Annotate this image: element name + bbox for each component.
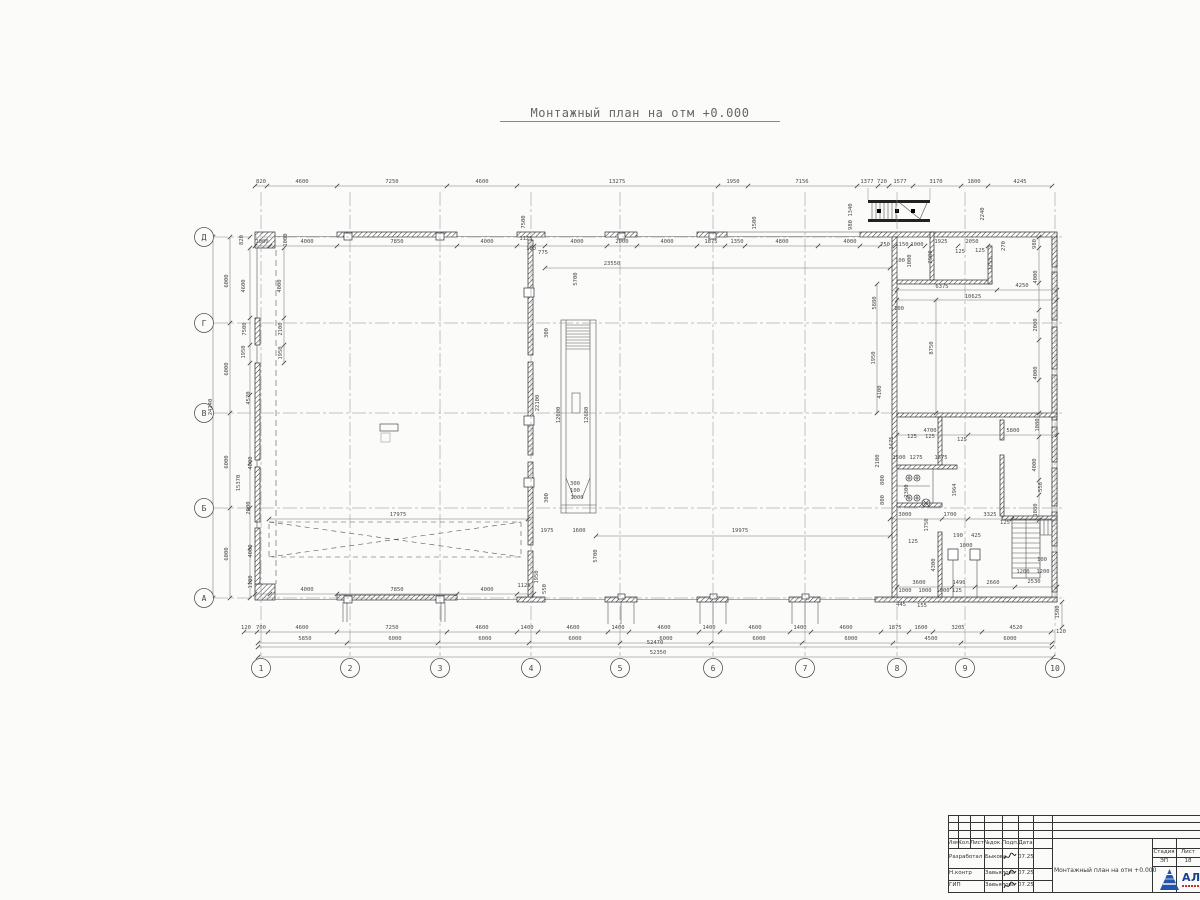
dimension-label: 6000 (478, 636, 491, 642)
dimension-label: 120 (1056, 629, 1066, 635)
axis-marker-col-10: 10 (1046, 659, 1065, 678)
axis-label: 10 (1050, 664, 1060, 673)
dimension-label: 4000 (248, 544, 254, 557)
tb-stage-value: ЭП (1152, 859, 1176, 865)
dimension-lines-layer (213, 186, 1062, 657)
dimension-label: 1950 (726, 179, 739, 185)
dimension-label: 17975 (390, 512, 407, 518)
dimension-label: 2000 (246, 501, 252, 514)
dimension-label: 120 (241, 625, 251, 631)
dimension-label: 100 (570, 488, 580, 494)
dimension-label: 7500 (521, 215, 527, 228)
axis-label: Г (202, 319, 207, 328)
dimension-label: 1000 (570, 495, 583, 501)
dimension-label: 1925 (934, 239, 947, 245)
tb-date-gip: 07.25 (1018, 883, 1033, 889)
dimension-label: 1200 (1036, 569, 1049, 575)
dimension-label: 1000 (255, 239, 268, 245)
dimension-label: 1500 (1055, 605, 1061, 618)
dimension-label: 7850 (390, 587, 403, 593)
tb-header-list: Лист (970, 841, 984, 847)
dimension-label: 2660 (986, 580, 999, 586)
dimension-label: 5850 (298, 636, 311, 642)
axis-label: Б (202, 504, 207, 513)
dimension-label: 12680 (584, 407, 590, 424)
axis-marker-row-Д: Д (195, 228, 214, 247)
dimension-label: 6000 (224, 547, 230, 560)
dimension-label: 1400 (520, 625, 533, 631)
axis-marker-col-5: 5 (611, 659, 630, 678)
dimension-label: 4600 (295, 625, 308, 631)
dimension-label: 445 (896, 602, 906, 608)
axis-label: 7 (803, 664, 808, 673)
dimension-label: 1700 (943, 512, 956, 518)
axis-marker-row-Б: Б (195, 499, 214, 518)
dimension-label: 4000 (570, 239, 583, 245)
dimension-label: 125 (955, 249, 965, 255)
tb-role-developer: Разработал (949, 855, 982, 861)
dimension-label: 4600 (839, 625, 852, 631)
dimension-label: 300 (544, 328, 550, 338)
axis-label: 3 (438, 664, 443, 673)
dimension-label: 4600 (566, 625, 579, 631)
drawing-title: Монтажный план на отм +0.000 (500, 106, 780, 122)
dimension-label: 1200 (1016, 569, 1029, 575)
dimension-label: 4000 (1032, 458, 1038, 471)
dimension-label: 800 (880, 495, 886, 505)
dimension-label: 8750 (929, 341, 935, 354)
dimension-label: 1150 (895, 242, 908, 248)
axis-marker-row-Г: Г (195, 314, 214, 333)
dimension-label: 52350 (650, 650, 667, 656)
dimension-label: 1350 (730, 239, 743, 245)
dimension-label: 1000 (907, 254, 913, 267)
dimension-label: 3325 (983, 512, 996, 518)
tb-date-ncontrol: 07.25 (1018, 871, 1033, 877)
dimension-label: 23550 (604, 261, 621, 267)
dimension-label: 125 (907, 434, 917, 440)
dimension-label: 4600 (475, 179, 488, 185)
tb-role-ncontrol: Н.контр (949, 871, 972, 877)
dimension-label: 1377 (860, 179, 873, 185)
dimension-label: 300 (570, 481, 580, 487)
signature-gip (1003, 881, 1017, 891)
dimension-label: 2000 (615, 239, 628, 245)
dimension-label: 4570 (246, 391, 252, 404)
dimension-label: 1600 (914, 625, 927, 631)
dimension-label: 1125 (517, 583, 530, 589)
signature-ncontrol (1003, 869, 1017, 879)
dimension-label: 1950 (871, 351, 877, 364)
dimension-label: 100 (894, 306, 904, 312)
dimension-label: 6000 (224, 362, 230, 375)
dimension-label: 2530 (1027, 579, 1040, 585)
dimension-label: 2240 (980, 207, 986, 220)
dimension-label: 270 (1001, 241, 1007, 251)
dimension-label: 1800 (967, 179, 980, 185)
dimension-label: 125 (1000, 520, 1010, 526)
tb-header-data: Дата (1018, 841, 1033, 847)
dimension-label: 4245 (1013, 179, 1026, 185)
dimension-label: 4000 (300, 239, 313, 245)
dimension-label: 1080 (1035, 418, 1041, 431)
dimension-label: 1950 (278, 346, 284, 359)
dimension-label: 425 (971, 533, 981, 539)
dimension-label: 125 (908, 539, 918, 545)
dimension-label: 1340 (848, 203, 854, 216)
dimension-label: 820 (239, 235, 245, 245)
axis-label: А (202, 594, 207, 603)
axis-label: 6 (711, 664, 716, 673)
dimension-label: 720 (877, 179, 887, 185)
dimension-label: 980 (848, 220, 854, 230)
dimension-label: 6000 (388, 636, 401, 642)
dimension-label: 4600 (748, 625, 761, 631)
dimension-label: 1000 (283, 233, 289, 246)
dimension-label: 3170 (929, 179, 942, 185)
dimension-label: 4800 (775, 239, 788, 245)
drawing-sheet: Монтажный план на отм +0.000 (0, 0, 1200, 900)
axis-label: 1 (259, 664, 264, 673)
dimension-label: 1275 (909, 455, 922, 461)
dimension-label: 155 (917, 603, 927, 609)
dimension-label: 5880 (872, 296, 878, 309)
dimension-label: 7250 (385, 179, 398, 185)
dimension-label: 1400 (611, 625, 624, 631)
dimension-label: 4000 (660, 239, 673, 245)
dimension-label: 7250 (385, 625, 398, 631)
dimension-label: 1875 (888, 625, 901, 631)
dimension-label: 10625 (965, 294, 982, 300)
dimension-label: 300 (544, 493, 550, 503)
dimension-label: 6000 (224, 274, 230, 287)
dimension-label: 1500 (752, 216, 758, 229)
dimension-label: 100 (895, 258, 905, 264)
dimension-label: 7850 (390, 239, 403, 245)
company-logo-icon (1160, 869, 1179, 890)
axis-marker-col-8: 8 (888, 659, 907, 678)
dimension-label: 2100 (875, 454, 881, 467)
dimension-label: 1577 (893, 179, 906, 185)
dimension-label: 4100 (877, 385, 883, 398)
dimension-label: 4000 (843, 239, 856, 245)
axis-label: В (202, 409, 207, 418)
signature-developer (1003, 852, 1017, 862)
axis-label: 5 (618, 664, 623, 673)
tb-header-podp: Подп. (1002, 841, 1018, 847)
dimension-label: 4500 (924, 636, 937, 642)
dimension-label: 4000 (1033, 270, 1039, 283)
dimension-label: 1000 (959, 543, 972, 549)
dimension-label: 3475 (889, 436, 895, 449)
dimension-label: 1000 (898, 588, 911, 594)
dimension-label: 2300 (904, 484, 910, 497)
dimension-label: 1750 (924, 518, 930, 531)
dimension-label: 4000 (480, 239, 493, 245)
dimension-label: 4250 (1015, 283, 1028, 289)
column-markers (344, 233, 980, 603)
dimension-label: 6000 (1003, 636, 1016, 642)
axis-marker-col-3: 3 (431, 659, 450, 678)
company-logo-text: АЛЬЯ (1182, 872, 1200, 883)
dimension-label: 6000 (568, 636, 581, 642)
dimension-label: 6375 (935, 284, 948, 290)
tb-stage-label: Стадия (1152, 850, 1176, 856)
dimension-label: 4000 (300, 587, 313, 593)
dimension-label: 750 (880, 242, 890, 248)
dimension-label: 100 (1037, 557, 1047, 563)
dimension-label: 1000 (936, 588, 949, 594)
dimension-label: 4600 (475, 625, 488, 631)
axis-marker-row-А: А (195, 589, 214, 608)
dimension-label: 1400 (702, 625, 715, 631)
dimension-label: 3000 (898, 512, 911, 518)
title-block: Изм. Кол. Лист №док. Подп. Дата Разработ… (948, 815, 1200, 893)
dimension-label: 4000 (277, 279, 283, 292)
dimension-label: 19975 (732, 528, 749, 534)
dimension-label: 6000 (844, 636, 857, 642)
dimension-label: 5800 (1006, 428, 1019, 434)
dimension-label: 12000 (556, 407, 562, 424)
tb-header-kol: Кол. (958, 841, 970, 847)
dimension-label: 775 (538, 250, 548, 256)
dimension-label: 52470 (647, 640, 664, 646)
dimension-label: 1000 (910, 242, 923, 248)
dimension-label: 15370 (236, 475, 242, 492)
floor-plan: 12345678910ДГВБА 82046007250460013275195… (0, 0, 1200, 900)
dimension-label: 125 (975, 248, 985, 254)
axis-marker-col-4: 4 (522, 659, 541, 678)
dimension-label: 1950 (534, 570, 540, 583)
dimension-label: 1000 (918, 588, 931, 594)
dimension-label: 550 (542, 584, 548, 594)
dimension-label: 3600 (912, 580, 925, 586)
dimension-label: 100 (526, 246, 536, 252)
dimension-label: 558 (1038, 482, 1044, 492)
axis-marker-col-6: 6 (704, 659, 723, 678)
dimension-label: 5700 (573, 272, 579, 285)
dimension-label: 4000 (1033, 366, 1039, 379)
tb-sheet-value: 18 (1176, 859, 1200, 865)
dimension-label: 1080 (1033, 503, 1039, 516)
dimension-label: 1875 (704, 239, 717, 245)
company-logo-subtext (1182, 885, 1200, 887)
dimension-label: 1975 (540, 528, 553, 534)
axis-label: Д (202, 233, 207, 242)
dimension-label: 7156 (795, 179, 808, 185)
dimension-label: 4300 (931, 558, 937, 571)
dimension-label: 4600 (295, 179, 308, 185)
dimension-label: 1125 (519, 236, 532, 242)
axis-marker-col-7: 7 (796, 659, 815, 678)
axis-label: 2 (348, 664, 353, 673)
dimension-label: 24240 (208, 399, 214, 416)
dimension-label: 1950 (241, 345, 247, 358)
axis-label: 8 (895, 664, 900, 673)
tb-sheet-label: Лист (1176, 850, 1200, 856)
dimension-label: 4520 (1009, 625, 1022, 631)
dimension-label: 3205 (951, 625, 964, 631)
dimension-label: 1490 (952, 580, 965, 586)
dimension-label: 7500 (242, 322, 248, 335)
dimension-label: 800 (880, 475, 886, 485)
dimension-label: 1100 (248, 575, 254, 588)
tb-date-developer: 07.25 (1018, 855, 1033, 861)
dimension-label: 1964 (952, 483, 958, 497)
axis-marker-col-1: 1 (252, 659, 271, 678)
dimension-label: 5700 (593, 549, 599, 562)
dimension-label: 1675 (934, 455, 947, 461)
tb-role-gip: ГИП (949, 883, 961, 889)
dimension-label: 190 (953, 533, 963, 539)
dimension-label: 2000 (1033, 318, 1039, 331)
tb-header-ndok: №док. (984, 841, 1002, 847)
dimension-label: 125 (952, 588, 962, 594)
dimension-label: 125 (925, 434, 935, 440)
dimension-label: 820 (256, 179, 266, 185)
loading-dock-stair (868, 188, 930, 222)
axis-marker-col-9: 9 (956, 659, 975, 678)
tb-doc-title: Монтажный план на отм +0.000 (1054, 868, 1150, 874)
dimension-label: 125 (957, 437, 967, 443)
axis-marker-col-2: 2 (341, 659, 360, 678)
dimension-label: 2900 (928, 250, 934, 263)
axis-label: 4 (529, 664, 534, 673)
dimension-label: 4600 (241, 279, 247, 292)
dimension-label: 6000 (752, 636, 765, 642)
dimension-label: 6000 (224, 455, 230, 468)
dimension-label: 1600 (572, 528, 585, 534)
dimension-label: 22100 (535, 395, 541, 412)
tb-header-izm: Изм. (948, 841, 958, 847)
dimension-label: 1755 (988, 257, 994, 270)
dimension-label: 4600 (657, 625, 670, 631)
dimension-label: 4000 (248, 456, 254, 469)
dimension-label: 1500 (892, 455, 905, 461)
dimension-label: 4000 (480, 587, 493, 593)
dimension-label: 2100 (278, 322, 284, 335)
dimension-label: 13275 (609, 179, 626, 185)
axis-label: 9 (963, 664, 968, 673)
dimension-label: 980 (1032, 239, 1038, 249)
dimension-label: 700 (256, 625, 266, 631)
dimension-label: 1400 (793, 625, 806, 631)
dimension-label: 2050 (965, 239, 978, 245)
